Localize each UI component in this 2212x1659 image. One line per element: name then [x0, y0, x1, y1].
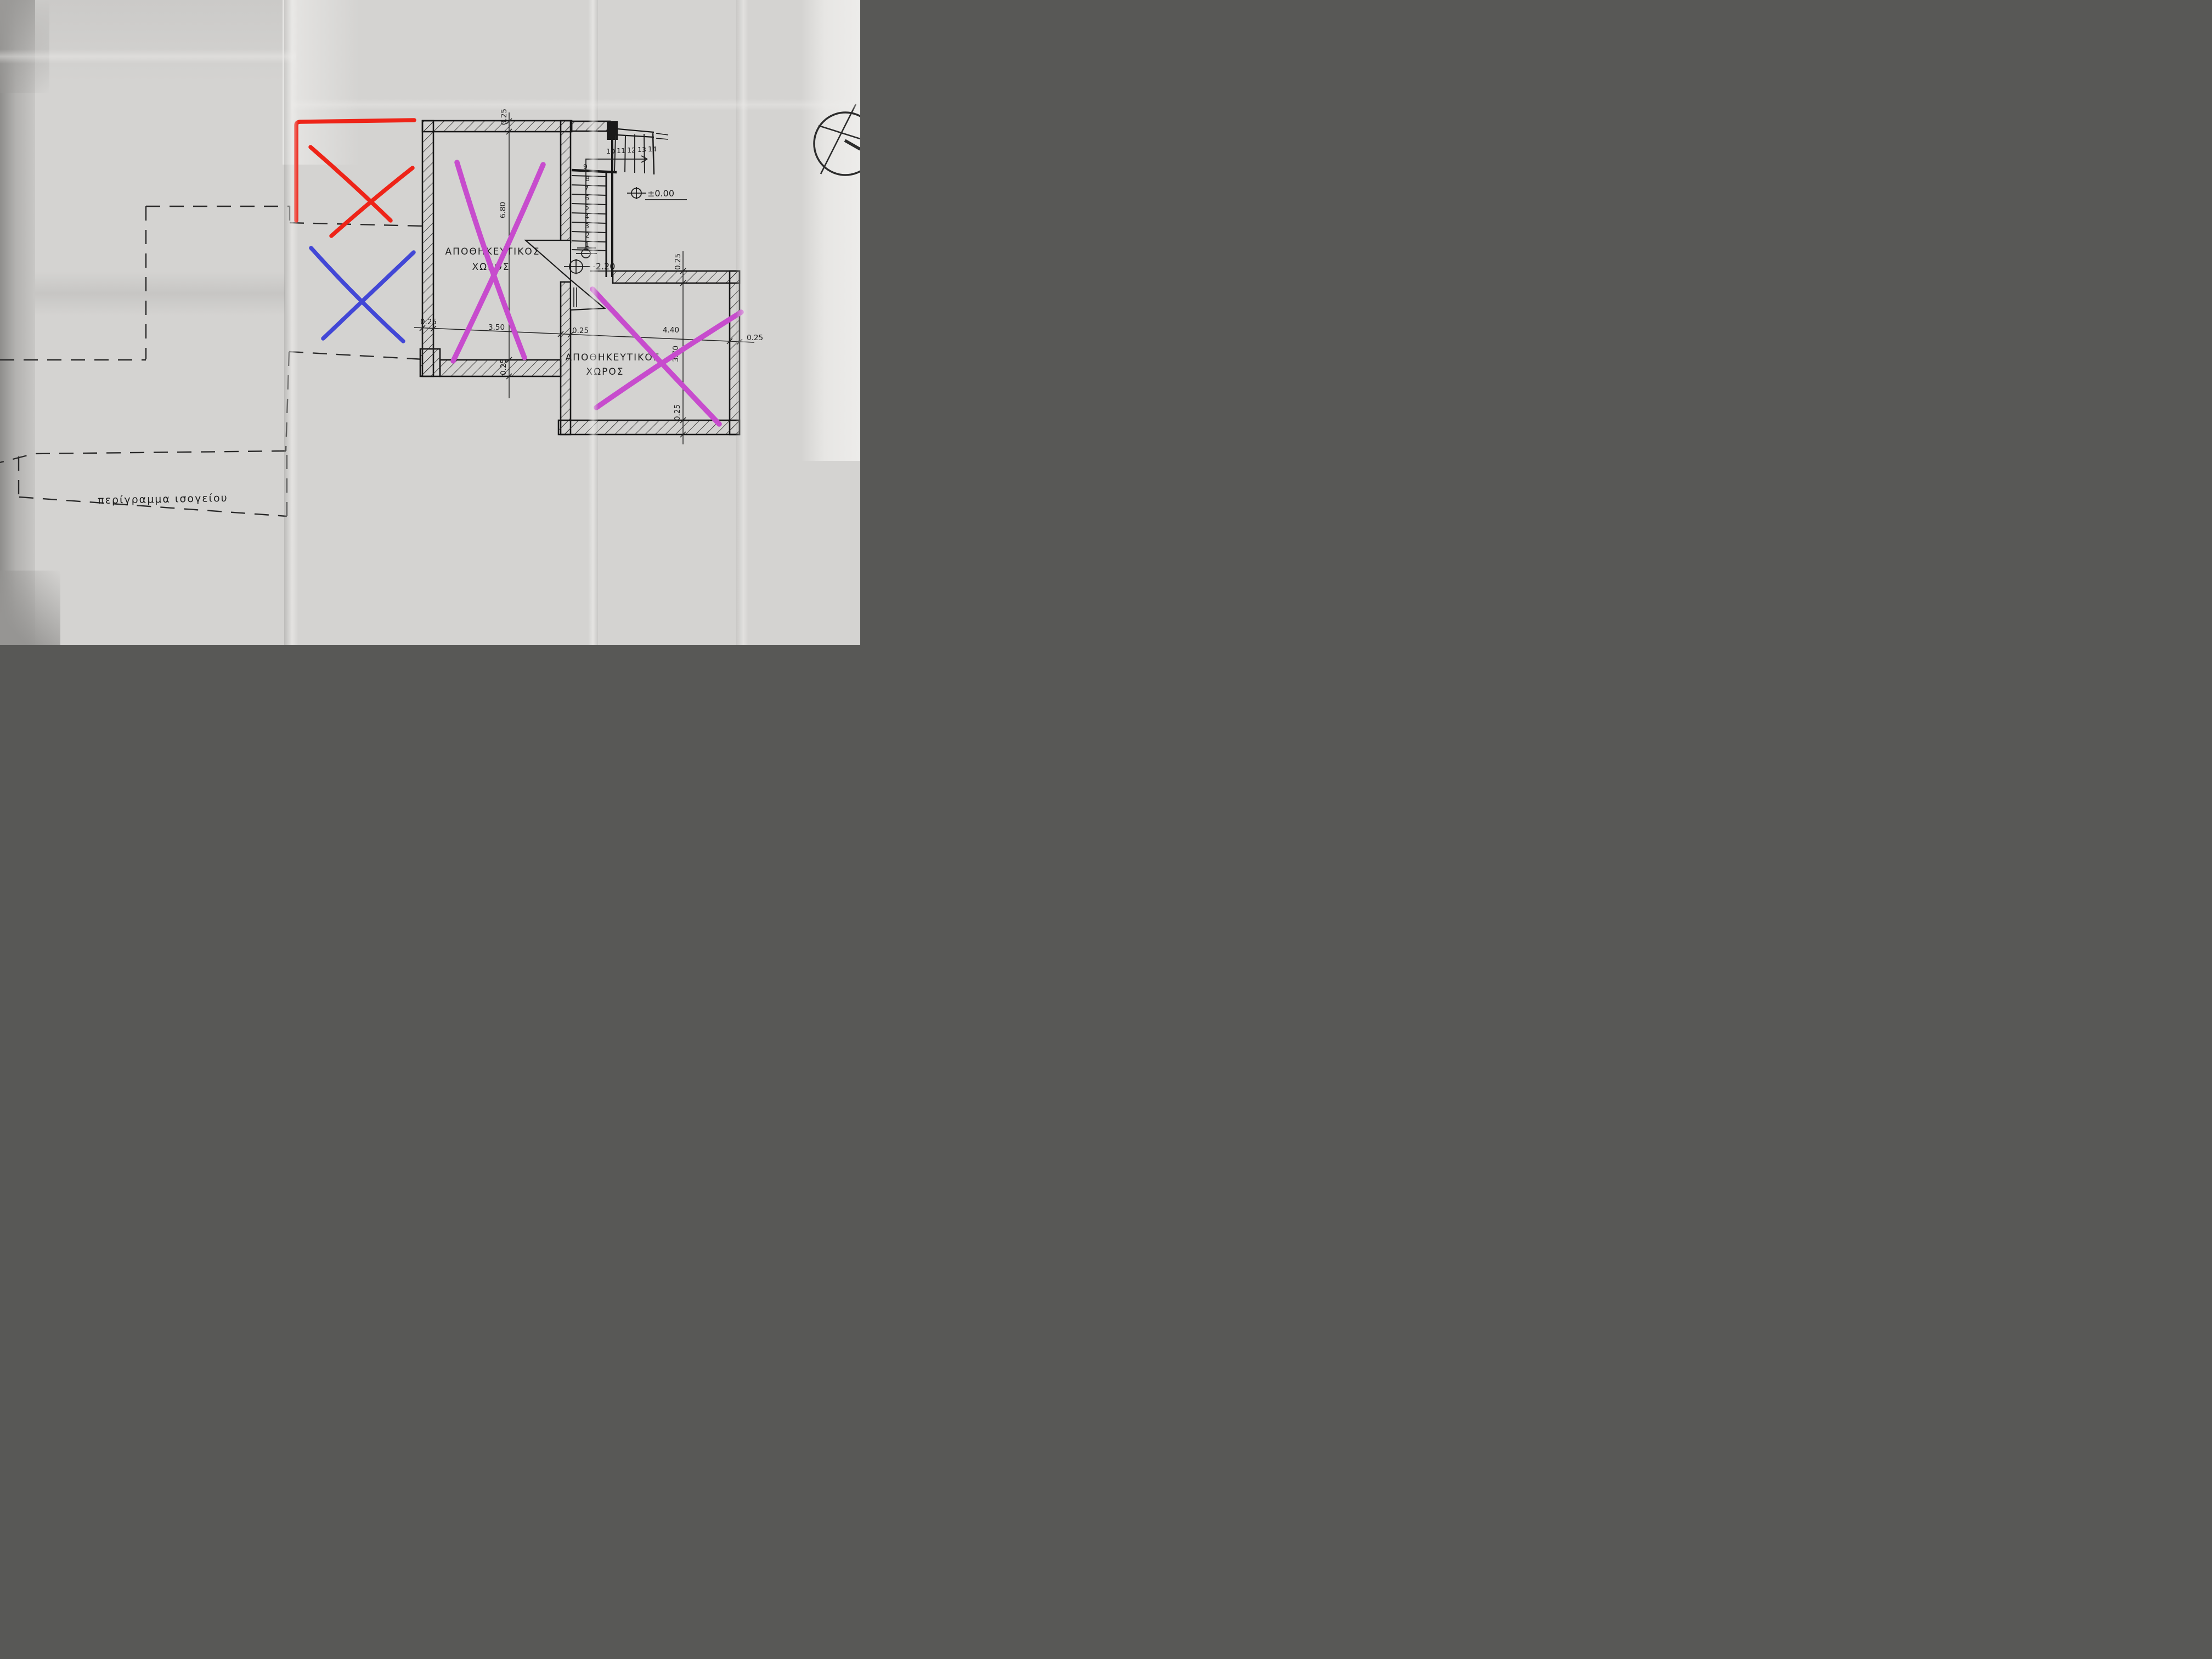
level-text-ground: ±0.00: [647, 188, 674, 199]
stair-top-wall: [572, 121, 610, 131]
level-marks: [564, 187, 687, 274]
stair-corner-block: [607, 121, 618, 140]
stair-number: 5: [585, 203, 589, 211]
dim-room2-width: 4.40: [663, 326, 679, 335]
floor-plan-drawing: ΑΠΟΘΗΚΕΥΤΙΚΟΣ ΧΩΡΟΣ ΑΠΟΘΗΚΕΥΤΙΚΟΣ ΧΩΡΟΣ …: [0, 0, 860, 645]
room2-label-line1: ΑΠΟΘΗΚΕΥΤΙΚΟΣ: [566, 352, 661, 363]
dim-room1-wall-bottom: 0.25: [499, 359, 508, 375]
stair-number: 6: [585, 194, 589, 202]
stair-number: 11: [617, 146, 625, 155]
blue-x-annotation: [311, 248, 414, 341]
room2-label-line2: ΧΩΡΟΣ: [586, 366, 624, 377]
north-compass-icon: [814, 104, 860, 175]
dim-chain-left: 0.25: [420, 318, 437, 326]
dim-room2-wall-top: 0.25: [674, 253, 682, 270]
blueprint-photo: ΑΠΟΘΗΚΕΥΤΙΚΟΣ ΧΩΡΟΣ ΑΠΟΘΗΚΕΥΤΙΚΟΣ ΧΩΡΟΣ …: [0, 0, 860, 645]
stair-number: 7: [584, 184, 589, 193]
stair-number: 9: [583, 162, 588, 171]
dim-room1-depth: 6.80: [499, 202, 507, 218]
room1-right-wall-upper: [561, 121, 571, 242]
ground-outline-label: περίγραμμα ισογείου: [98, 492, 228, 506]
room1-label-line1: ΑΠΟΘΗΚΕΥΤΙΚΟΣ: [445, 246, 540, 257]
stair-number: 14: [648, 145, 657, 153]
stair-number: 13: [637, 145, 646, 154]
stair-number: 10: [606, 147, 615, 155]
dim-room1-wall-top: 0.25: [500, 109, 509, 125]
level-text-basement: -2.20: [592, 261, 615, 272]
room2-top-wall: [613, 271, 740, 283]
blue-x-stroke-1: [311, 248, 403, 341]
room1-top-wall: [422, 121, 572, 132]
walls: [420, 121, 740, 435]
dim-chain-right: 0.25: [747, 334, 763, 342]
room2-right-wall: [730, 271, 740, 435]
dim-room1-width: 3.50: [488, 323, 505, 332]
blue-x-stroke-2: [323, 252, 414, 338]
room1-bottom-pier: [420, 349, 440, 376]
stair-number: 12: [627, 146, 636, 154]
stair-number: 8: [585, 174, 590, 183]
red-x-stroke-1: [311, 147, 391, 221]
dim-chain-mid: 0.25: [572, 326, 589, 335]
red-corner-outline: [296, 120, 414, 221]
stair-number: 4: [585, 212, 589, 221]
room2-bottom-wall: [558, 420, 740, 435]
red-annotation: [296, 120, 414, 236]
stair-number: 2: [585, 231, 590, 239]
stair-number: 3: [585, 222, 589, 230]
room1-left-wall: [422, 121, 433, 376]
dim-room2-wall-bottom: 0.25: [673, 404, 682, 421]
ground-floor-dashed-outline: [0, 206, 424, 516]
stair-number: 1: [585, 240, 589, 249]
